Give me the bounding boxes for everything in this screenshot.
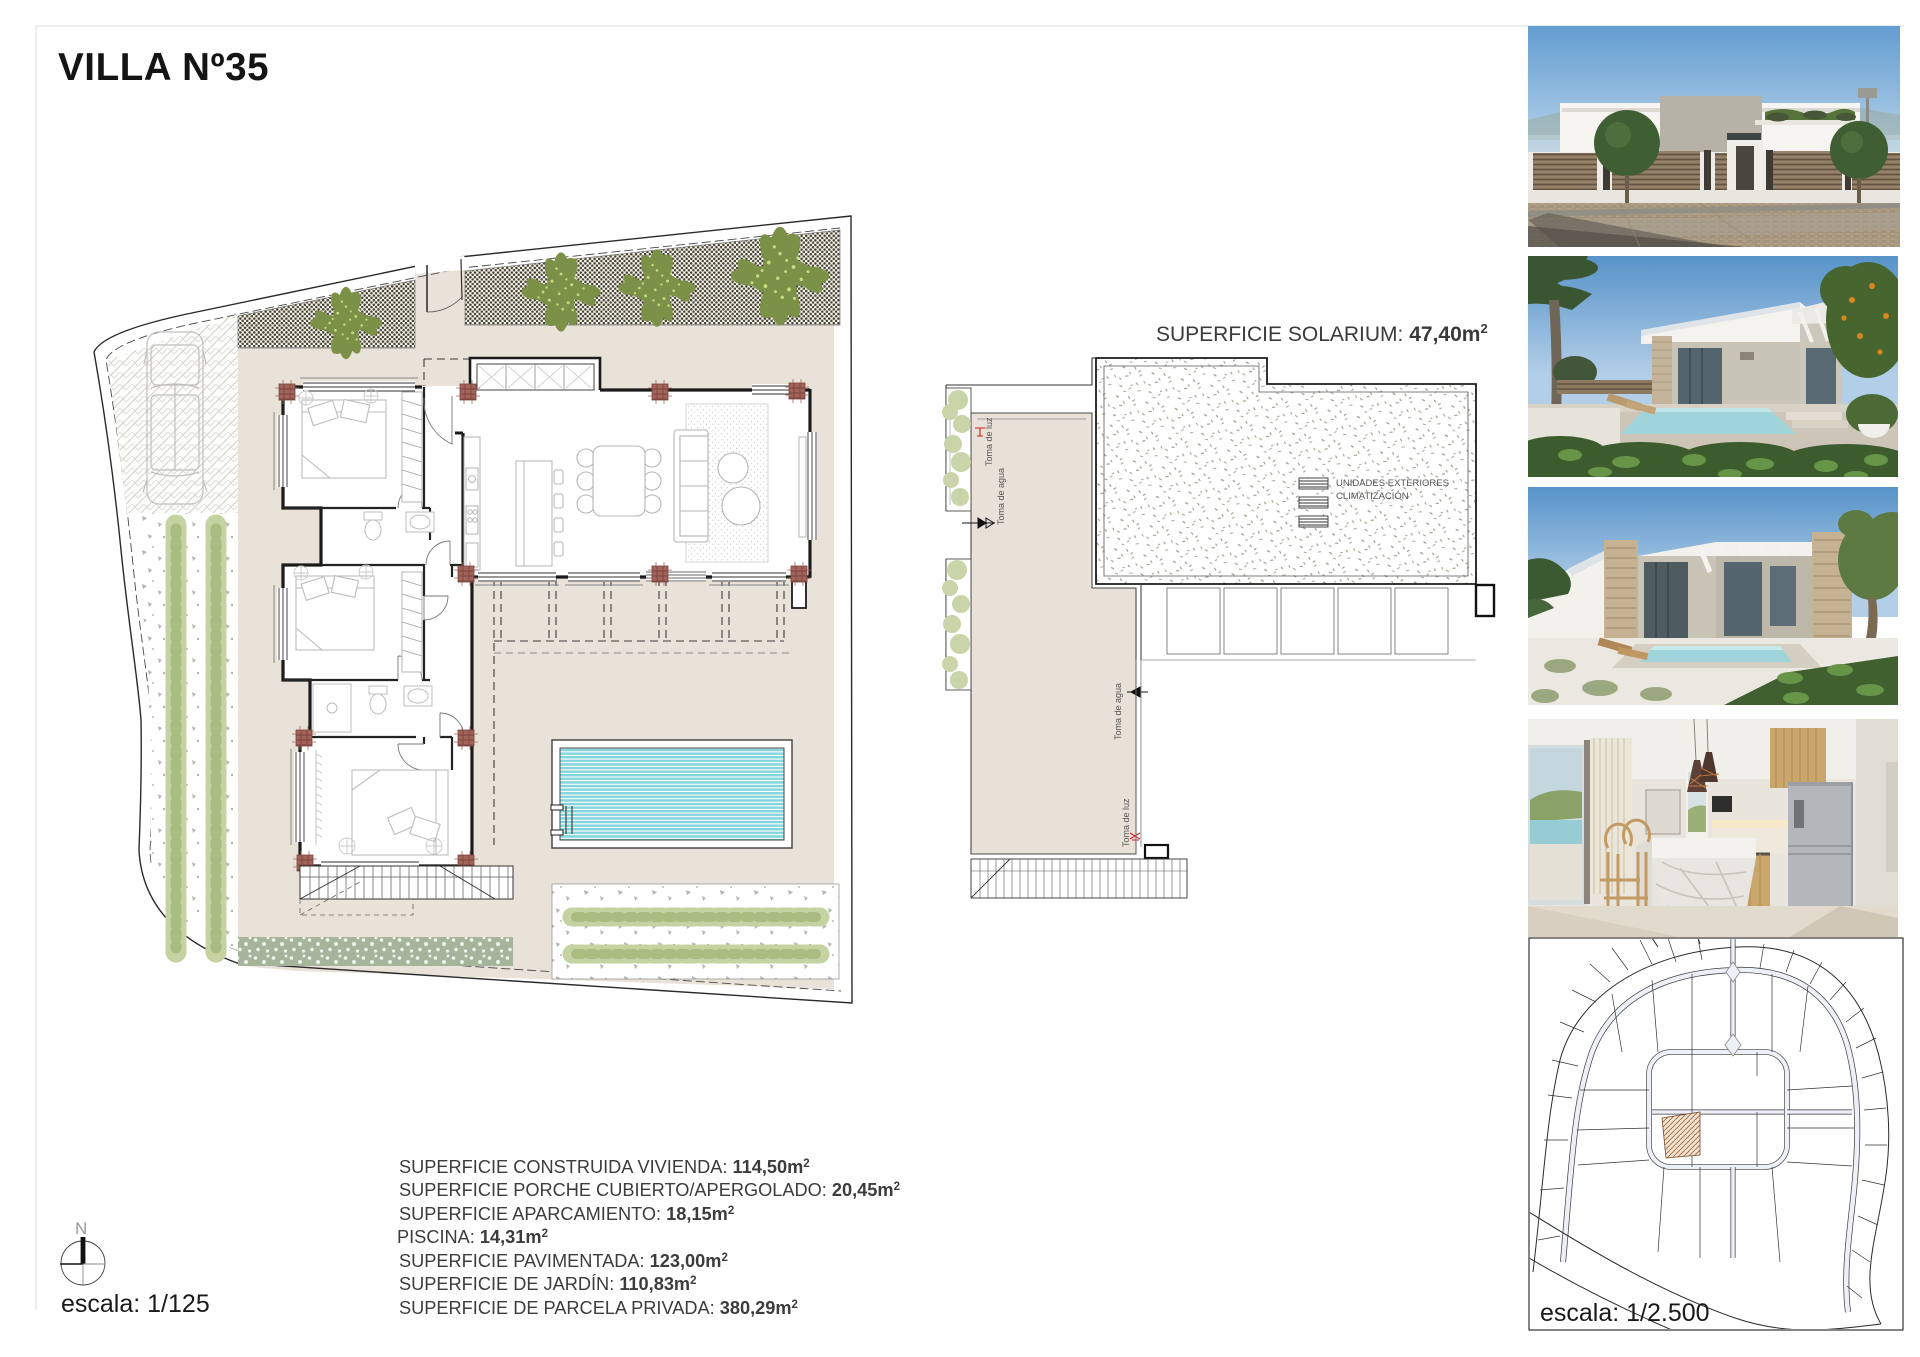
svg-text:SUPERFICIE CONSTRUIDA VIVIENDA: SUPERFICIE CONSTRUIDA VIVIENDA: 114,50m2 — [399, 1157, 810, 1177]
svg-text:SUPERFICIE PAVIMENTADA: 123,00: SUPERFICIE PAVIMENTADA: 123,00m2 — [399, 1251, 728, 1271]
svg-text:PISCINA: 14,31m2: PISCINA: 14,31m2 — [397, 1227, 548, 1247]
svg-text:SUPERFICIE SOLARIUM: 47,40m2: SUPERFICIE SOLARIUM: 47,40m2 — [1156, 321, 1488, 346]
svg-text:Toma de luz: Toma de luz — [984, 417, 994, 466]
svg-text:escala: 1/125: escala: 1/125 — [61, 1290, 210, 1318]
svg-text:SUPERFICIE DE JARDÍN: 110,83m2: SUPERFICIE DE JARDÍN: 110,83m2 — [399, 1274, 697, 1294]
svg-text:SUPERFICIE APARCAMIENTO: 18,15: SUPERFICIE APARCAMIENTO: 18,15m2 — [399, 1204, 734, 1224]
svg-text:Toma de luz: Toma de luz — [1121, 798, 1131, 847]
svg-text:N: N — [75, 1219, 87, 1238]
svg-text:UNIDADES EXTERIORES: UNIDADES EXTERIORES — [1336, 478, 1449, 489]
svg-text:VILLA Nº35: VILLA Nº35 — [58, 46, 269, 89]
svg-text:Toma de agua: Toma de agua — [1113, 683, 1123, 740]
svg-text:CLIMATIZACIÓN: CLIMATIZACIÓN — [1336, 491, 1409, 502]
svg-text:Toma de agua: Toma de agua — [996, 468, 1006, 525]
svg-text:SUPERFICIE PORCHE CUBIERTO/APE: SUPERFICIE PORCHE CUBIERTO/APERGOLADO: 2… — [399, 1180, 900, 1200]
svg-text:escala: 1/2.500: escala: 1/2.500 — [1540, 1299, 1710, 1327]
svg-text:SUPERFICIE DE PARCELA PRIVADA:: SUPERFICIE DE PARCELA PRIVADA: 380,29m2 — [399, 1298, 798, 1318]
